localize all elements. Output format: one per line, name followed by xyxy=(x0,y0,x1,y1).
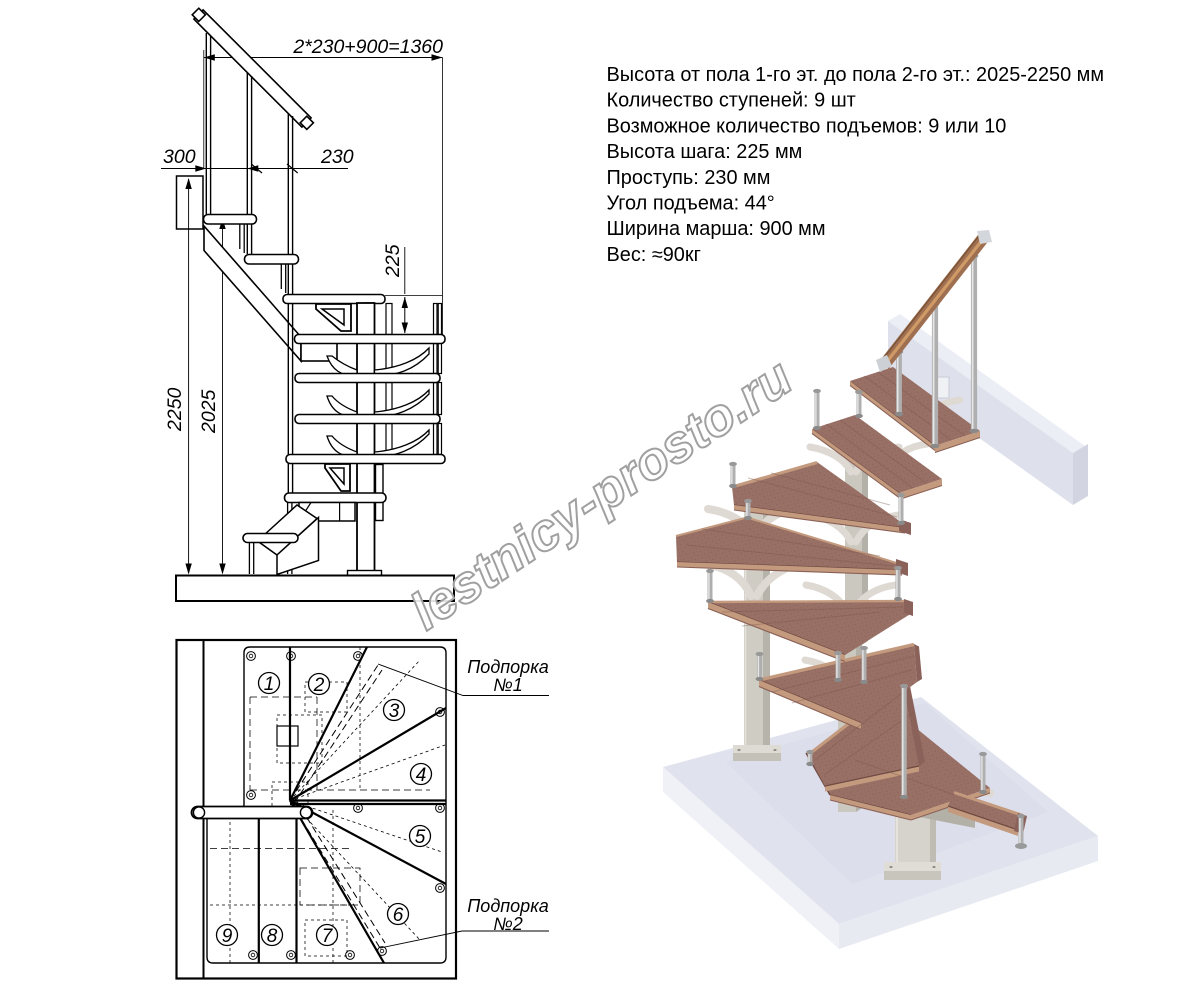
svg-text:2025: 2025 xyxy=(198,389,220,434)
svg-text:300: 300 xyxy=(163,146,196,168)
svg-text:225: 225 xyxy=(382,244,404,278)
svg-text:3: 3 xyxy=(389,701,400,722)
svg-text:Ширина марша: 900 мм: Ширина марша: 900 мм xyxy=(607,218,826,240)
svg-text:Проступь: 230 мм: Проступь: 230 мм xyxy=(607,167,771,189)
svg-text:7: 7 xyxy=(322,926,334,947)
svg-text:Вес: ≈90кг: Вес: ≈90кг xyxy=(607,244,701,266)
svg-text:1: 1 xyxy=(264,674,275,695)
svg-text:Подпорка: Подпорка xyxy=(467,657,548,677)
svg-text:230: 230 xyxy=(320,146,354,168)
svg-text:Высота от пола 1-го эт. до пол: Высота от пола 1-го эт. до пола 2-го эт.… xyxy=(607,64,1105,86)
svg-text:№1: №1 xyxy=(493,675,523,695)
svg-text:Количество ступеней: 9 шт: Количество ступеней: 9 шт xyxy=(607,90,856,112)
svg-text:Подпорка: Подпорка xyxy=(467,896,548,916)
svg-text:Угол подъема: 44°: Угол подъема: 44° xyxy=(607,193,775,215)
svg-text:Возможное количество подъемов:: Возможное количество подъемов: 9 или 10 xyxy=(607,115,1007,137)
svg-text:9: 9 xyxy=(222,926,233,947)
svg-text:8: 8 xyxy=(267,926,278,947)
svg-text:Высота шага: 225 мм: Высота шага: 225 мм xyxy=(607,141,803,163)
svg-text:2250: 2250 xyxy=(164,387,186,432)
svg-text:2: 2 xyxy=(313,675,325,696)
svg-text:4: 4 xyxy=(416,765,427,786)
svg-text:5: 5 xyxy=(415,827,426,848)
svg-text:6: 6 xyxy=(393,905,404,926)
svg-text:2*230+900=1360: 2*230+900=1360 xyxy=(292,36,443,58)
